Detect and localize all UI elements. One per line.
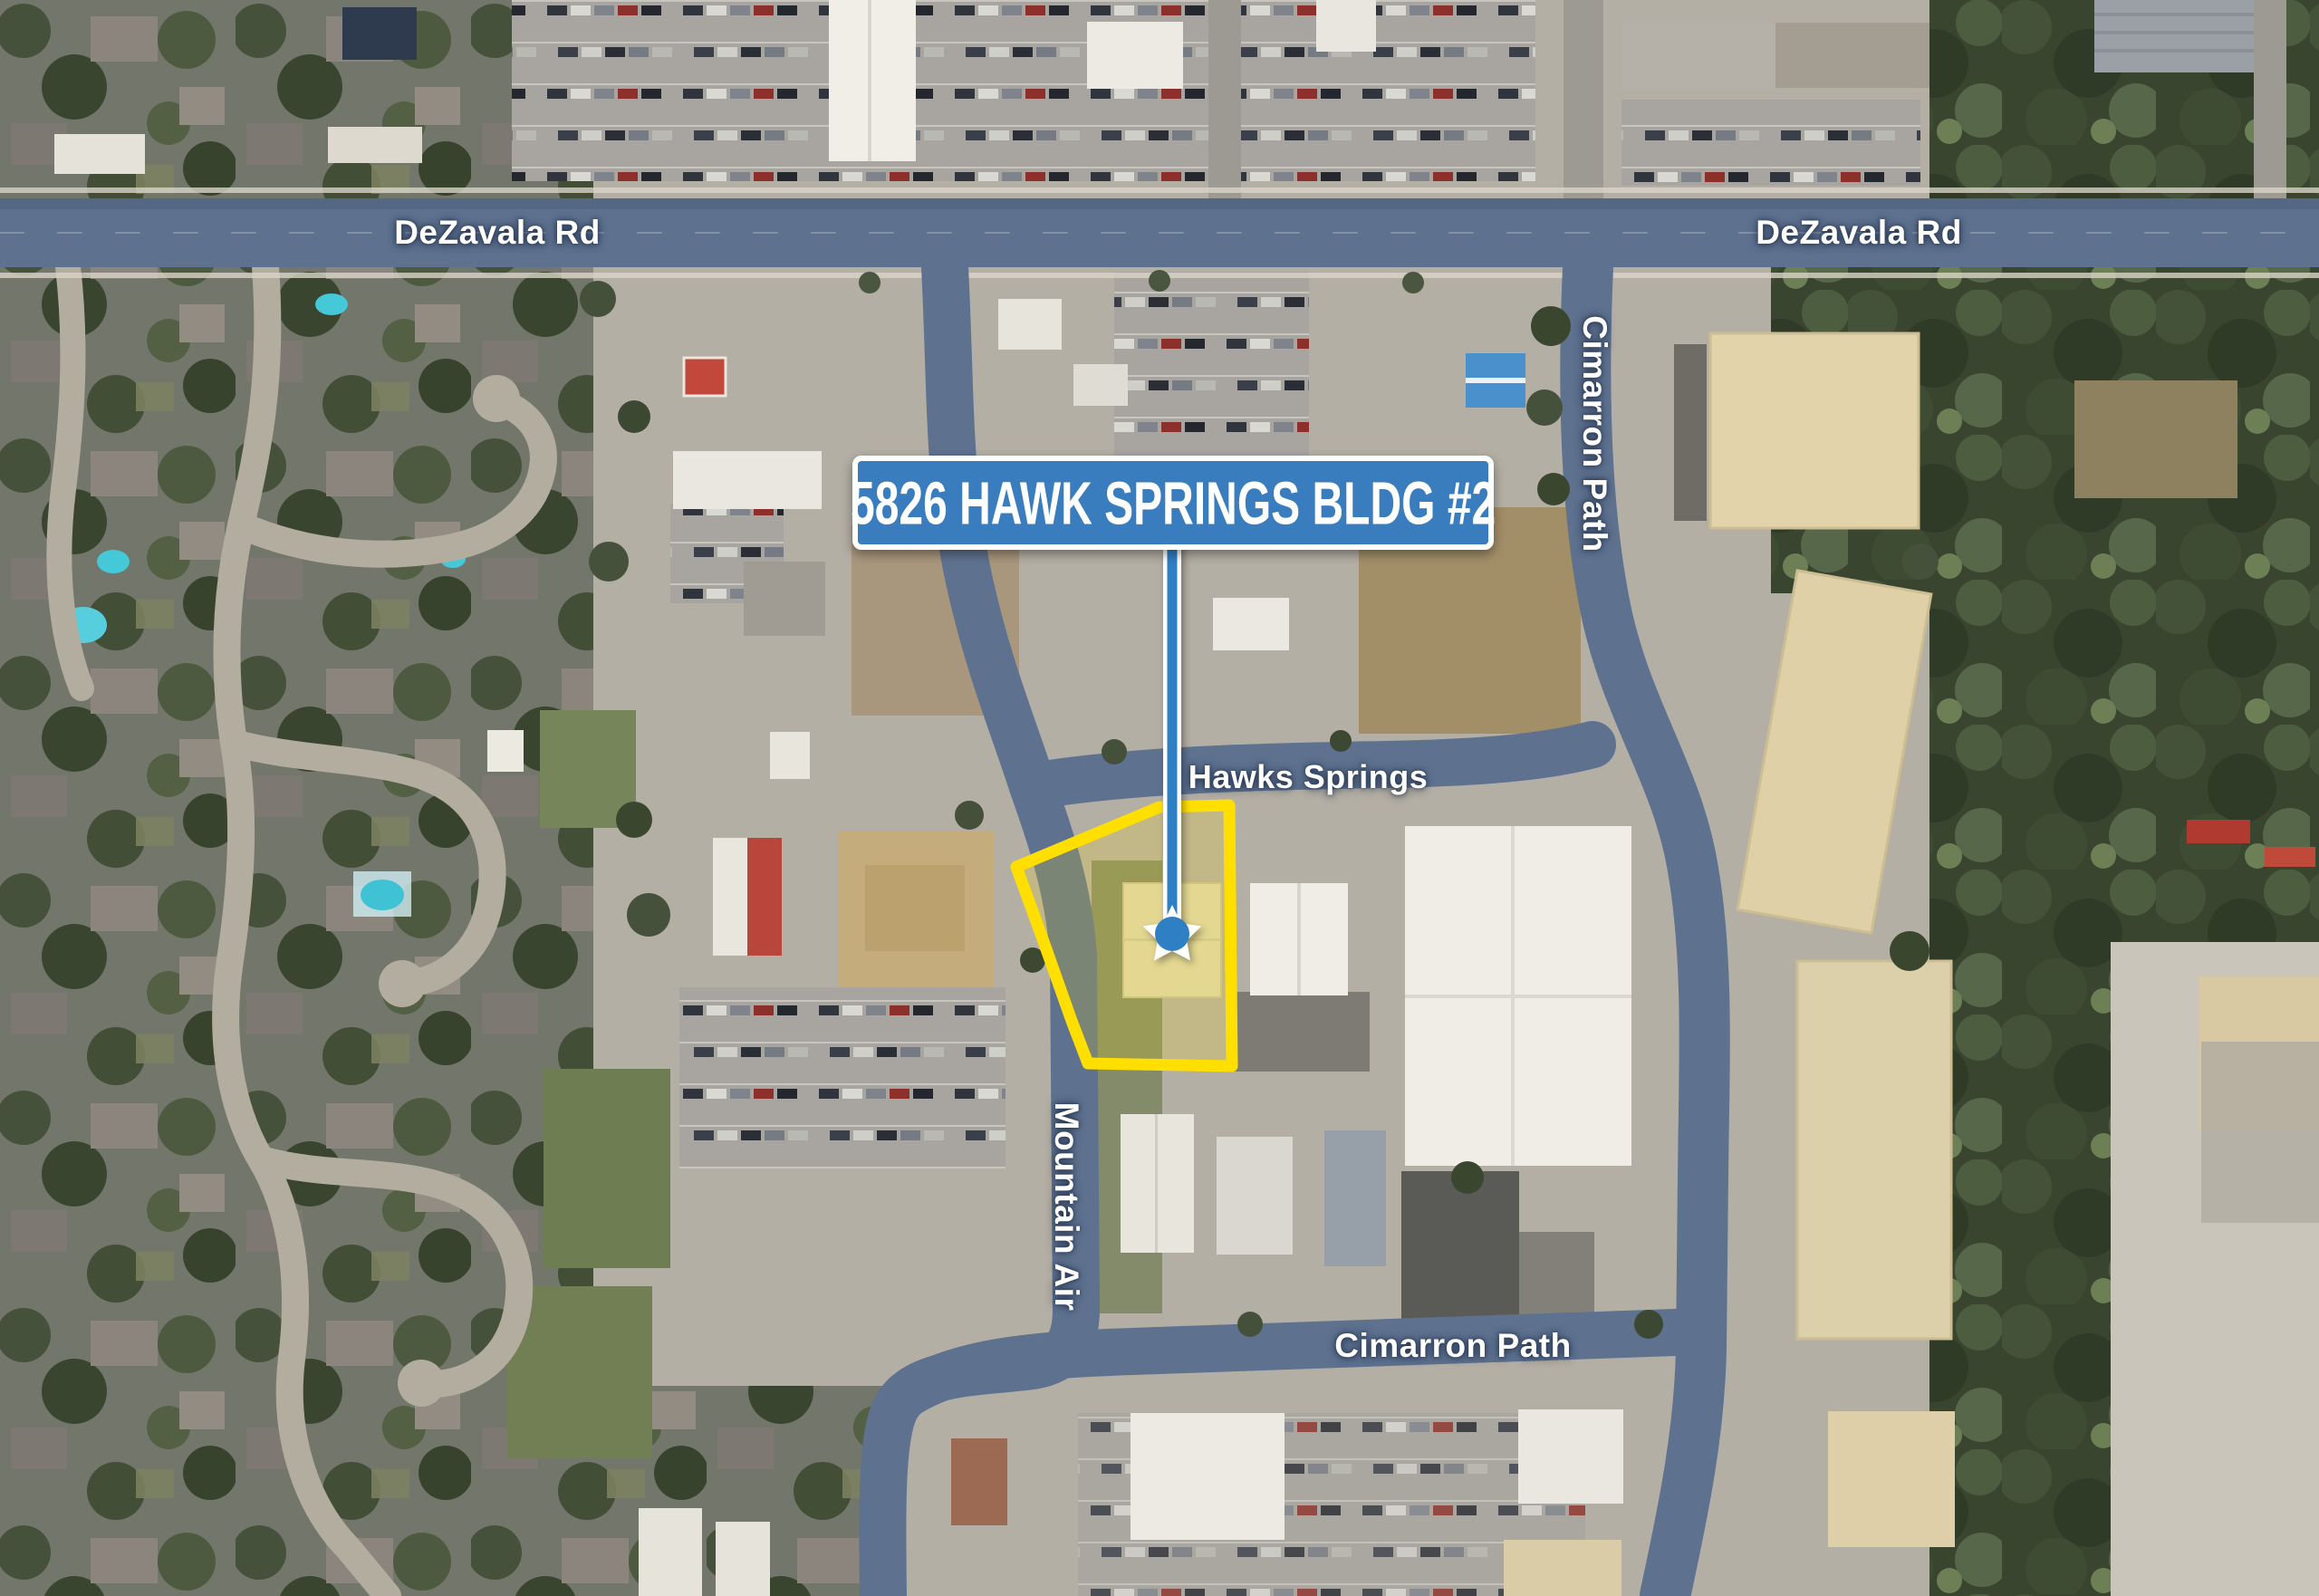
road-label-cimarron-path-bottom: Cimarron Path	[1334, 1327, 1571, 1365]
road-label-cimarron-path-top: Cimarron Path	[1575, 315, 1613, 552]
road-label-mountain-air: Mountain Air	[1047, 1102, 1085, 1312]
road-label-dezavala-left: DeZavala Rd	[394, 214, 601, 252]
marker-dot	[1155, 917, 1189, 951]
satellite-map	[0, 0, 2319, 1596]
road-label-hawks-springs: Hawks Springs	[1188, 758, 1429, 796]
map-stage: DeZavala Rd DeZavala Rd Cimarron Path Ha…	[0, 0, 2319, 1596]
road-label-dezavala-right: DeZavala Rd	[1756, 214, 1962, 252]
address-callout: 5826 HAWK SPRINGS BLDG #2	[852, 456, 1494, 550]
address-callout-label: 5826 HAWK SPRINGS BLDG #2	[851, 467, 1496, 537]
